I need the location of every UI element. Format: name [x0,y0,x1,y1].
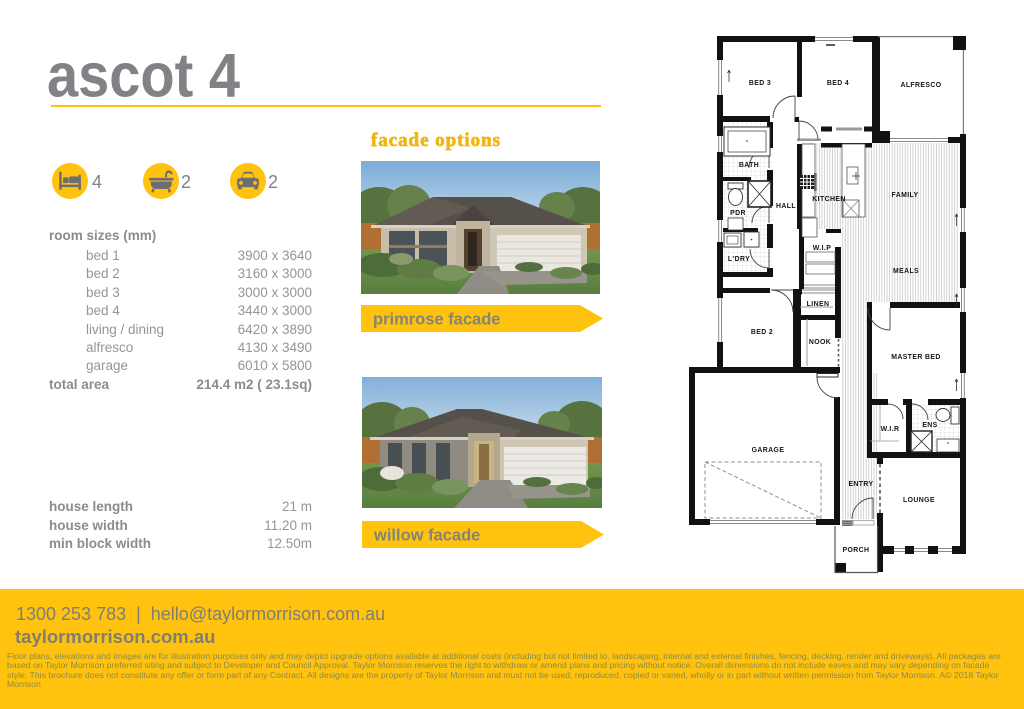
svg-text:GARAGE: GARAGE [752,447,785,454]
svg-text:willow facade: willow facade [373,527,480,545]
svg-text:LINEN: LINEN [807,301,830,308]
svg-text:MASTER BED: MASTER BED [891,354,941,361]
svg-text:PORCH: PORCH [843,547,870,554]
svg-text:L'DRY: L'DRY [728,256,750,263]
svg-text:W.I.P: W.I.P [813,245,831,252]
svg-text:HALL: HALL [776,203,796,210]
svg-text:LOUNGE: LOUNGE [903,497,935,504]
svg-text:BED 4: BED 4 [827,80,849,87]
svg-text:BED 3: BED 3 [749,80,771,87]
svg-text:W.I.R: W.I.R [881,426,900,433]
svg-text:NOOK: NOOK [809,339,831,346]
svg-text:FAMILY: FAMILY [891,192,918,199]
svg-text:ENTRY: ENTRY [848,481,873,488]
svg-text:ALFRESCO: ALFRESCO [900,82,941,89]
svg-text:BED 2: BED 2 [751,329,773,336]
svg-text:ENS: ENS [922,422,937,429]
svg-text:BATH: BATH [739,162,759,169]
svg-text:MEALS: MEALS [893,268,919,275]
svg-text:PDR: PDR [730,210,746,217]
svg-text:primrose facade: primrose facade [373,311,500,329]
svg-text:KITCHEN: KITCHEN [812,196,845,203]
